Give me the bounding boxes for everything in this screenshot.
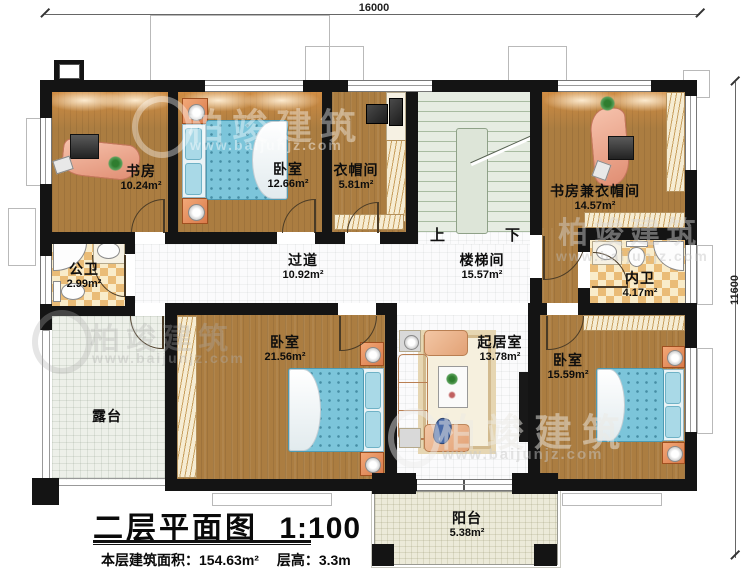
window xyxy=(558,80,651,92)
wall xyxy=(406,80,418,244)
wall xyxy=(315,232,345,244)
lamp-icon xyxy=(365,457,381,473)
sliding-door xyxy=(417,479,512,491)
plan-subtitle: 本层建筑面积：154.63m² 层高：3.3m xyxy=(101,550,351,570)
roof-eave-outline xyxy=(150,15,330,81)
right-dimension-line xyxy=(735,82,736,558)
lamp-icon xyxy=(365,347,381,363)
shelf-item xyxy=(389,98,403,126)
window-sill-outline xyxy=(697,245,713,305)
nightstand xyxy=(360,342,384,366)
coffee-table xyxy=(438,366,468,408)
wall xyxy=(530,80,542,235)
corner-post xyxy=(372,544,394,566)
wall xyxy=(583,303,697,315)
plant-icon xyxy=(600,96,615,111)
stair-landing xyxy=(456,128,488,234)
floor-area-label: 本层建筑面积： xyxy=(101,552,199,568)
stair-up-label: 上 xyxy=(430,224,445,245)
wardrobe-hatch xyxy=(177,316,197,478)
wall xyxy=(528,303,540,491)
wall xyxy=(380,232,406,244)
lamp-icon xyxy=(404,335,419,350)
corner-post xyxy=(534,544,557,566)
window xyxy=(685,245,697,303)
computer-monitor xyxy=(70,134,99,159)
window xyxy=(40,118,52,184)
wardrobe-hatch xyxy=(666,92,685,192)
nightstand xyxy=(182,198,208,224)
window xyxy=(205,80,303,92)
pillow xyxy=(665,372,681,404)
room-label-public-bath: 公卫 2.99m² xyxy=(67,261,102,290)
wall xyxy=(165,303,338,315)
wardrobe-hatch xyxy=(584,212,685,228)
room-label-bedroom-top: 卧室 12.66m² xyxy=(268,161,309,190)
floor-plan-page: 16000 11600 xyxy=(0,0,750,582)
nightstand xyxy=(662,442,685,464)
wardrobe-hatch xyxy=(386,140,406,222)
room-label-living: 起居室 13.78m² xyxy=(478,334,523,363)
corner-post xyxy=(512,473,558,494)
room-label-study-cloak: 书房兼衣帽间 14.57m² xyxy=(550,183,640,212)
pillow xyxy=(185,163,202,195)
wall xyxy=(165,232,277,244)
floor-height-value: 3.3m xyxy=(319,552,351,568)
pillow xyxy=(365,372,381,409)
room-label-stairwell: 楼梯间 15.57m² xyxy=(460,252,505,281)
floor-area-value: 154.63m² xyxy=(199,552,259,568)
wall xyxy=(530,278,542,303)
chimney-flue xyxy=(59,64,80,79)
room-label-inner-bath: 内卫 4.17m² xyxy=(623,270,658,299)
corner-post xyxy=(32,478,59,505)
lamp-icon xyxy=(188,204,205,221)
watermark-logo-icon xyxy=(132,96,192,158)
lamp-icon xyxy=(667,446,683,462)
flower-icon xyxy=(448,391,456,399)
top-dimension-line xyxy=(45,14,700,15)
toilet-tank xyxy=(53,281,61,302)
wall xyxy=(165,303,177,491)
window-sill-outline xyxy=(697,348,713,434)
wall xyxy=(322,92,332,232)
room-label-balcony: 阳台 5.38m² xyxy=(450,510,485,539)
room-label-study: 书房 10.24m² xyxy=(121,163,162,192)
wall xyxy=(52,232,130,244)
room-label-bedroom-left: 卧室 21.56m² xyxy=(265,334,306,363)
floor-height-label: 层高： xyxy=(277,552,319,568)
watermark-logo-icon xyxy=(32,310,92,374)
room-label-cloakroom: 衣帽间 5.81m² xyxy=(334,162,379,191)
side-table xyxy=(399,330,421,352)
dimension-tick xyxy=(695,8,705,18)
stereo-box xyxy=(366,104,388,124)
wall xyxy=(528,303,547,315)
corner-post xyxy=(372,473,416,494)
title-underline xyxy=(93,544,311,545)
window xyxy=(685,348,697,432)
terrace-railing xyxy=(42,478,168,486)
watermark-logo-icon xyxy=(388,408,440,468)
room-label-terrace: 露台 xyxy=(92,408,122,425)
lamp-icon xyxy=(667,350,683,366)
top-dimension-label: 16000 xyxy=(344,2,404,14)
door-leaf xyxy=(162,316,164,349)
roof-eave-outline xyxy=(305,46,364,84)
wall xyxy=(588,228,697,240)
window xyxy=(685,96,697,170)
pillow xyxy=(365,411,381,448)
room-label-corridor: 过道 10.92m² xyxy=(283,252,324,281)
nightstand xyxy=(662,346,685,368)
window xyxy=(348,80,432,92)
room-label-bedroom-right: 卧室 15.59m² xyxy=(548,352,589,381)
title-underline xyxy=(93,540,311,543)
dimension-tick xyxy=(40,8,50,18)
bay-window-outline xyxy=(8,208,36,266)
computer-monitor xyxy=(608,136,634,160)
right-dimension-label: 11600 xyxy=(729,260,741,320)
armchair xyxy=(424,330,468,356)
stair-down-label: 下 xyxy=(505,224,520,245)
pillow xyxy=(665,406,681,438)
window xyxy=(40,256,52,304)
flower-icon xyxy=(446,373,458,385)
wall xyxy=(376,303,390,315)
wall xyxy=(385,303,397,491)
window-sill-outline xyxy=(562,493,662,506)
roof-eave-outline xyxy=(508,46,567,84)
wardrobe-hatch xyxy=(583,315,685,331)
